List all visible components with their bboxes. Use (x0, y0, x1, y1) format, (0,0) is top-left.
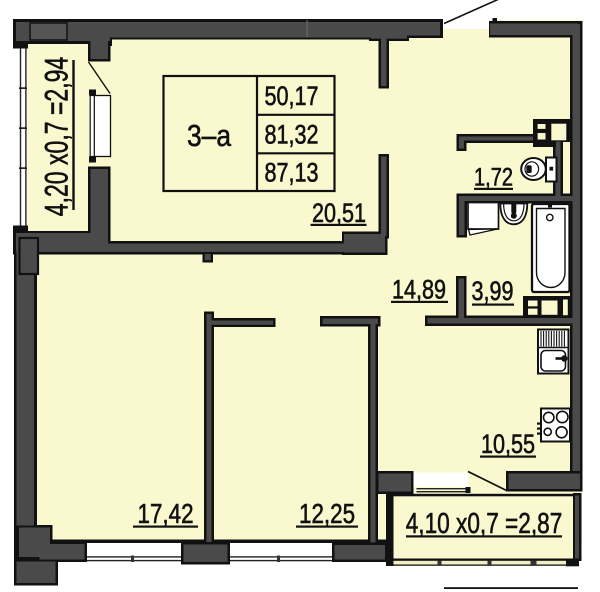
svg-text:50,17: 50,17 (264, 82, 318, 112)
svg-text:4,10 x0,7 =2,87: 4,10 x0,7 =2,87 (406, 506, 563, 539)
svg-text:10,55: 10,55 (481, 430, 535, 460)
svg-text:81,32: 81,32 (264, 120, 318, 150)
svg-text:3–а: 3–а (187, 119, 231, 153)
svg-text:3,99: 3,99 (471, 277, 513, 307)
svg-text:12,25: 12,25 (299, 499, 355, 530)
svg-text:4,20 x0,7 =2,94: 4,20 x0,7 =2,94 (39, 57, 75, 216)
svg-text:14,89: 14,89 (392, 275, 446, 305)
svg-text:17,42: 17,42 (137, 499, 193, 530)
svg-text:87,13: 87,13 (264, 158, 318, 188)
svg-text:1,72: 1,72 (474, 163, 513, 191)
